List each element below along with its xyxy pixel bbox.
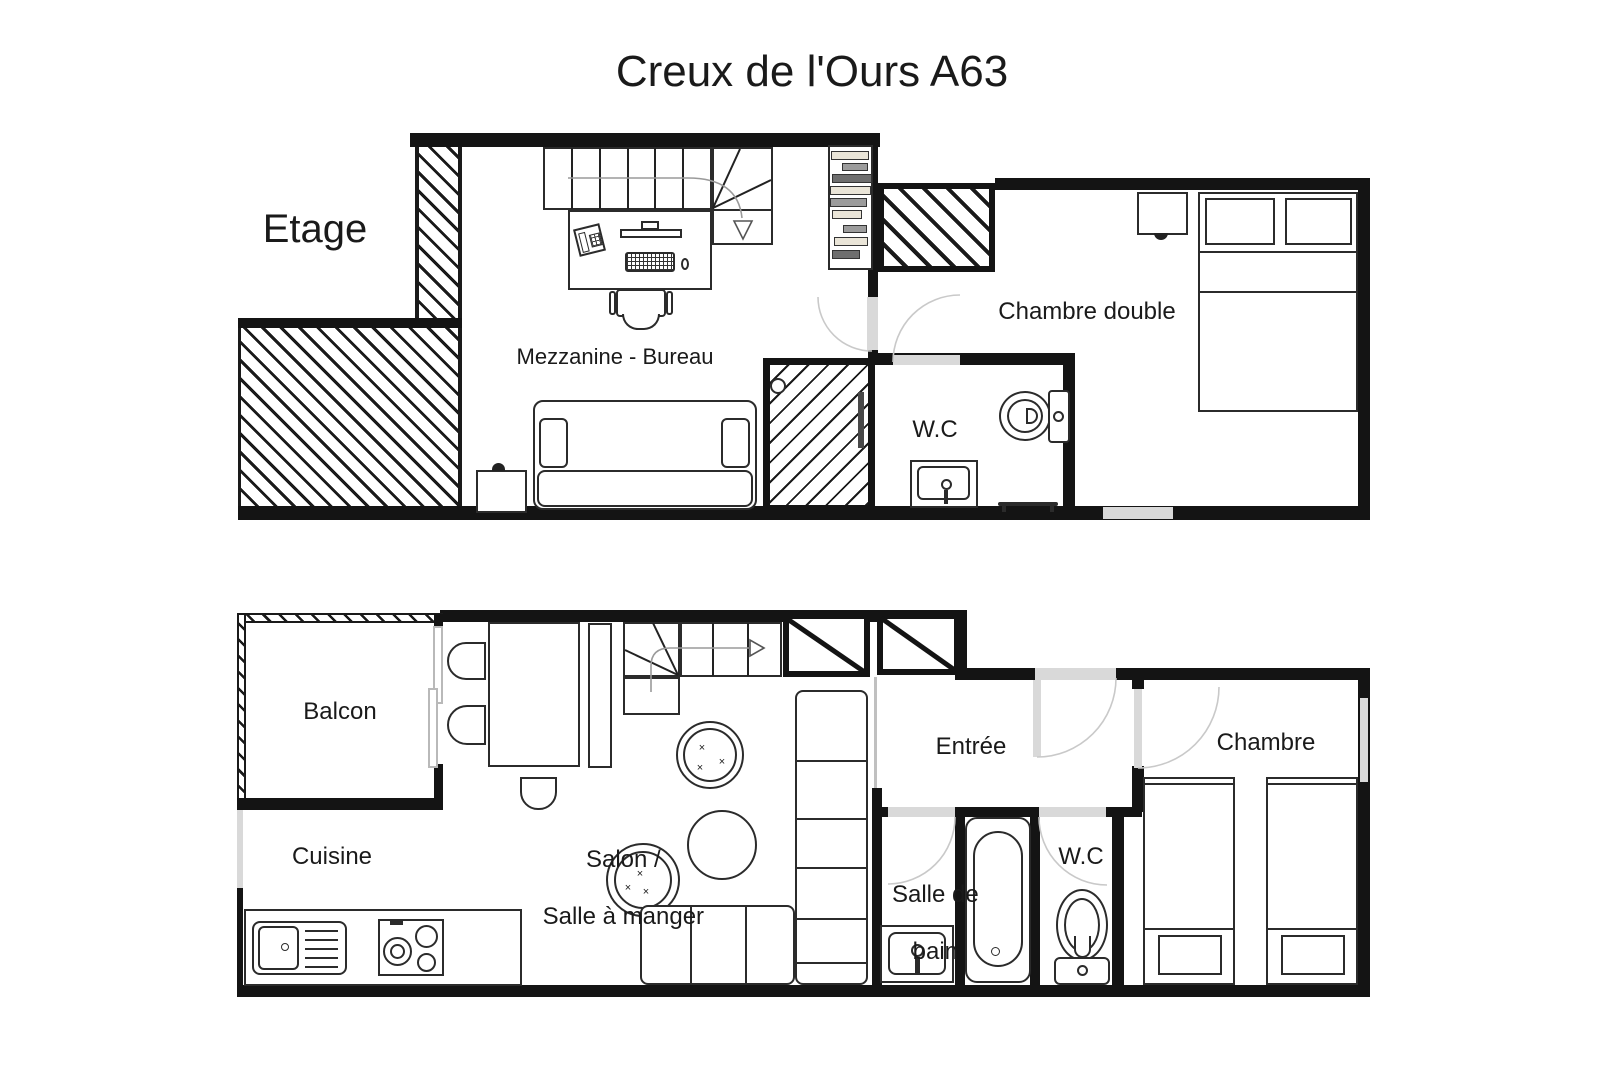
storage-box-diagonals bbox=[786, 618, 956, 673]
door-arcs bbox=[818, 295, 1219, 885]
stair-arrow-down bbox=[568, 178, 752, 239]
plan-annotations bbox=[0, 0, 1620, 1080]
floor-plan: Creux de l'Ours A63 Etage bbox=[0, 0, 1620, 1080]
